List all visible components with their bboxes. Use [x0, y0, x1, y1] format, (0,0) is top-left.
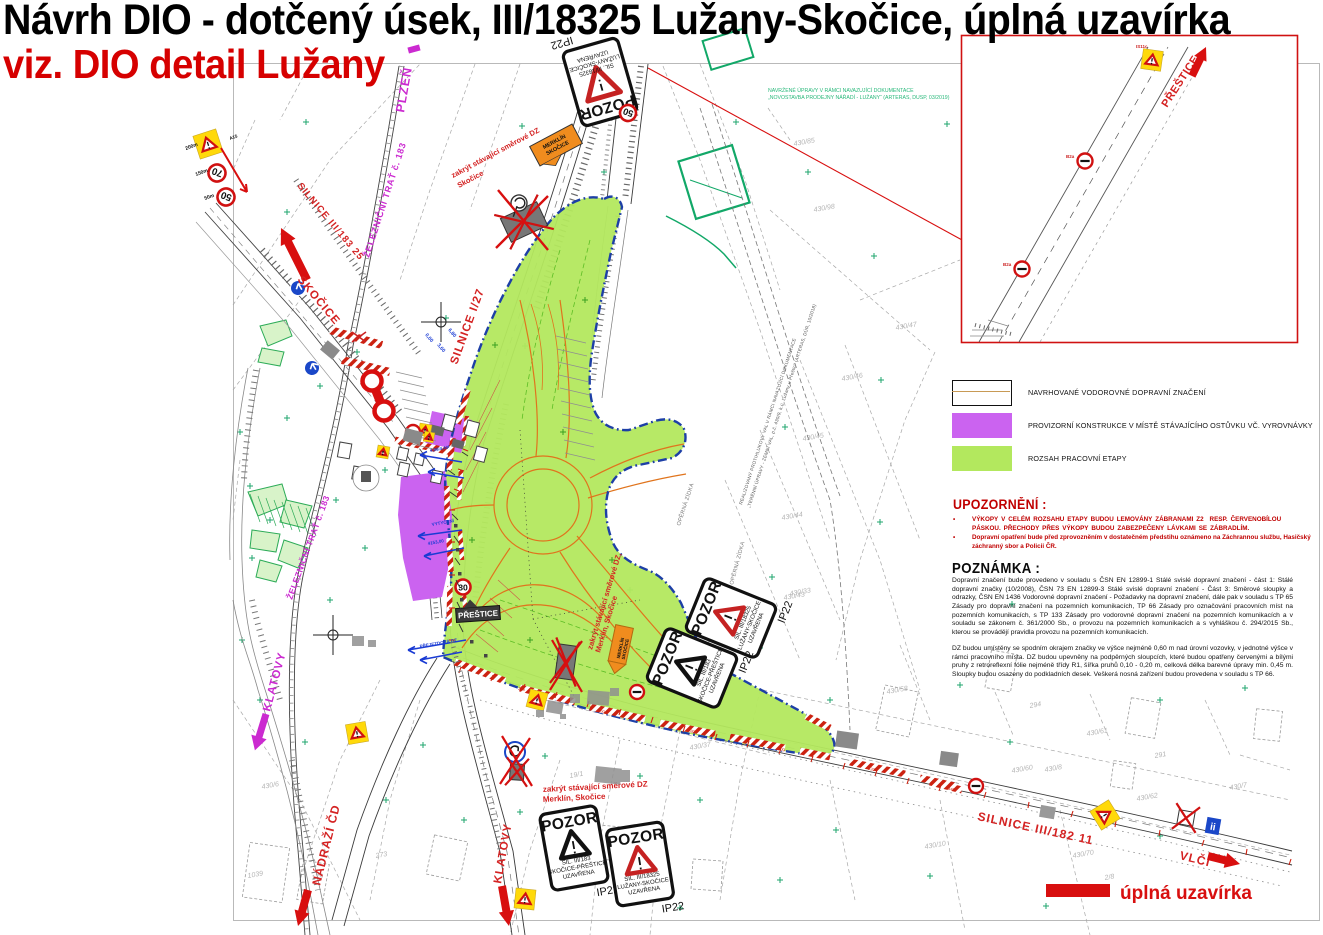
svg-text:SILNICE III/182 11: SILNICE III/182 11 [976, 809, 1094, 847]
svg-text:SILNICE III/183 25: SILNICE III/183 25 [295, 181, 366, 263]
svg-text:VYTYČENÍ: VYTYČENÍ [431, 516, 455, 527]
svg-text:VLČÍ: VLČÍ [1178, 847, 1212, 869]
svg-text:ŽELEZNIČNÍ TRAŤ č. 183: ŽELEZNIČNÍ TRAŤ č. 183 [360, 141, 408, 259]
svg-text:„TERÉNNÍ ÚPRAVY - ZEMNÍ VAL, p: „TERÉNNÍ ÚPRAVY - ZEMNÍ VAL, p.č. 430/9,… [745, 303, 817, 509]
svg-text:SKOČICE: SKOČICE [295, 274, 343, 328]
svg-text:3,60: 3,60 [435, 342, 446, 353]
svg-text:0,00: 0,00 [423, 332, 434, 343]
svg-text:A15: A15 [229, 133, 239, 141]
svg-text:6,80: 6,80 [446, 327, 457, 338]
svg-text:B2a: B2a [1066, 154, 1075, 159]
svg-text:200m: 200m [185, 142, 200, 152]
svg-text:OPĚRNÁ ZÍDKA: OPĚRNÁ ZÍDKA [674, 482, 695, 527]
svg-text:Merklín, Skočice: Merklín, Skočice [543, 792, 607, 804]
svg-text:KLATOVY: KLATOVY [492, 822, 514, 884]
svg-text:IP22: IP22 [661, 900, 685, 915]
svg-text:4153,00: 4153,00 [427, 538, 444, 546]
svg-text:50m: 50m [204, 193, 216, 202]
svg-text:zakrýt stávající směrové DZ: zakrýt stávající směrové DZ [450, 125, 541, 179]
svg-text:NAVRŽENÉ ÚPRAVY V RÁMCI NAVAZU: NAVRŽENÉ ÚPRAVY V RÁMCI NAVAZUJÍCÍ DOKUM… [768, 86, 914, 94]
svg-text:4,00/4,40: 4,00/4,40 [429, 445, 449, 453]
svg-text:150m: 150m [195, 168, 210, 178]
svg-text:ŽELEZNIČNÍ TRAŤ č. 183: ŽELEZNIČNÍ TRAŤ č. 183 [284, 494, 332, 601]
svg-text:IP22: IP22 [776, 599, 796, 624]
svg-text:KLATOVY: KLATOVY [261, 651, 288, 713]
svg-text:„NOVOSTAVBA PRODEJNY NÁŘADÍ -: „NOVOSTAVBA PRODEJNY NÁŘADÍ - LUŽANY“ (A… [768, 93, 950, 101]
svg-text:SILNICE I/27: SILNICE I/27 [449, 287, 488, 366]
svg-text:B2a: B2a [1003, 262, 1012, 267]
svg-text:NÁDRAŽÍ ČD: NÁDRAŽÍ ČD [308, 803, 343, 887]
svg-text:REALIZOVANÝ PROTIHLUKOVÝ VAL V: REALIZOVANÝ PROTIHLUKOVÝ VAL V RÁMCI NAV… [737, 337, 797, 505]
svg-text:úplná uzavírka: úplná uzavírka [1120, 883, 1252, 904]
svg-text:OPĚRNÁ ZÍDKA: OPĚRNÁ ZÍDKA [727, 540, 746, 585]
svg-text:PLZEŇ: PLZEŇ [392, 66, 415, 114]
